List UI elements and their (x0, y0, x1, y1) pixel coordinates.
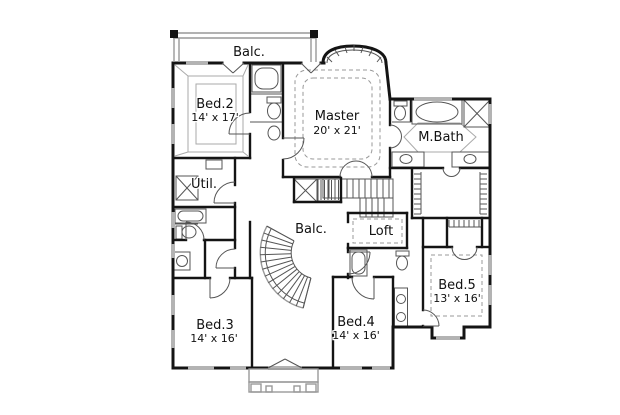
label-balcony-mid: Balc. (295, 222, 327, 237)
shower-icon (464, 100, 490, 127)
label-master: Master (315, 109, 360, 124)
label-util: Util. (191, 177, 217, 192)
bathtub-icon (252, 65, 281, 92)
floor-plan-drawing: Balc. Bed.2 14' x 17' Master 20' x 21' M… (0, 0, 620, 415)
bed5-closet (449, 220, 481, 227)
toilet-icon (267, 97, 281, 103)
balcony-post (170, 30, 178, 38)
sink-icon (268, 126, 280, 140)
sink-icon (464, 155, 476, 164)
porch (249, 369, 318, 392)
label-bed2: Bed.2 (196, 97, 234, 112)
dims-bed2: 14' x 17' (191, 111, 239, 124)
dims-master: 20' x 21' (313, 124, 361, 137)
linen-closet (294, 179, 341, 202)
floor-plan-page: Balc. Bed.2 14' x 17' Master 20' x 21' M… (0, 0, 620, 415)
master-closet (414, 172, 487, 214)
dims-bed5: 13' x 16' (433, 292, 481, 305)
dims-bed3: 14' x 16' (190, 332, 238, 345)
toilet-icon (396, 251, 409, 256)
curved-staircase (260, 226, 311, 308)
sink-icon (400, 155, 412, 164)
sink-icon (177, 256, 188, 267)
french-door-marks (222, 63, 321, 368)
dims-bed4: 14' x 16' (332, 329, 380, 342)
garden-tub-icon (412, 100, 462, 124)
bed2-bath-fixtures (250, 65, 283, 140)
sink-icon (397, 313, 406, 322)
toilet-icon (176, 226, 182, 239)
label-loft: Loft (369, 224, 393, 239)
balcony-post (310, 30, 318, 38)
label-bed3: Bed.3 (196, 318, 234, 333)
bathtub-icon (350, 250, 367, 276)
label-bed4: Bed.4 (337, 315, 375, 330)
label-balcony-top: Balc. (233, 45, 265, 60)
sink-icon (397, 295, 406, 304)
label-bed5: Bed.5 (438, 278, 476, 293)
label-mbath: M.Bath (418, 130, 464, 145)
straight-staircase (321, 179, 393, 217)
toilet-icon (394, 101, 407, 106)
